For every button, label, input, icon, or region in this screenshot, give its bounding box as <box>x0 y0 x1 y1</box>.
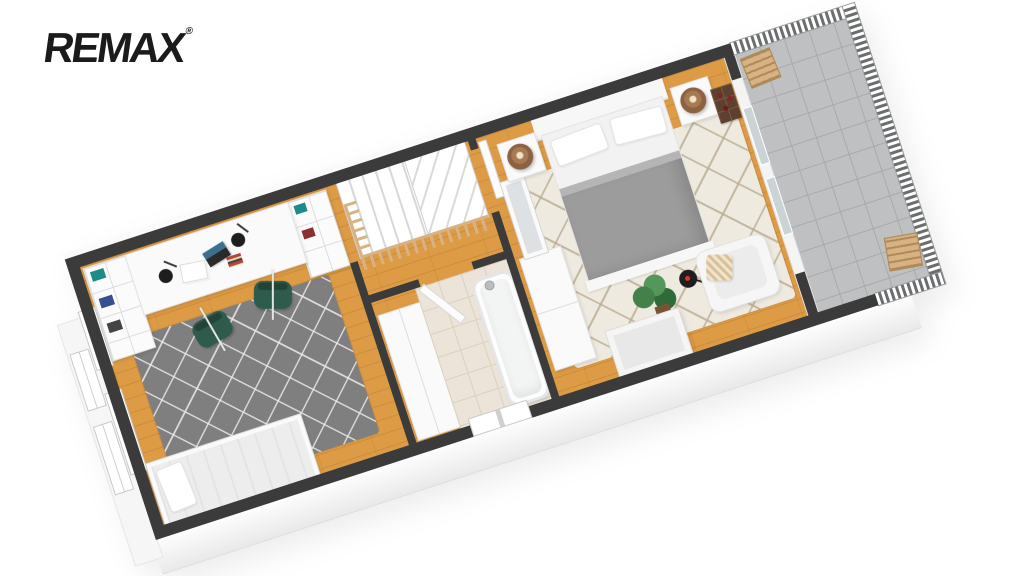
registered-mark: ® <box>185 26 194 37</box>
page-background: REMAX® <box>0 0 1024 576</box>
balcony-chair-2 <box>884 232 923 271</box>
floorplan <box>65 3 946 540</box>
armchair-pillow <box>706 255 732 281</box>
logo-text: REMAX <box>41 24 187 71</box>
remax-logo: REMAX® <box>41 24 194 72</box>
office-chair-2 <box>254 281 292 309</box>
